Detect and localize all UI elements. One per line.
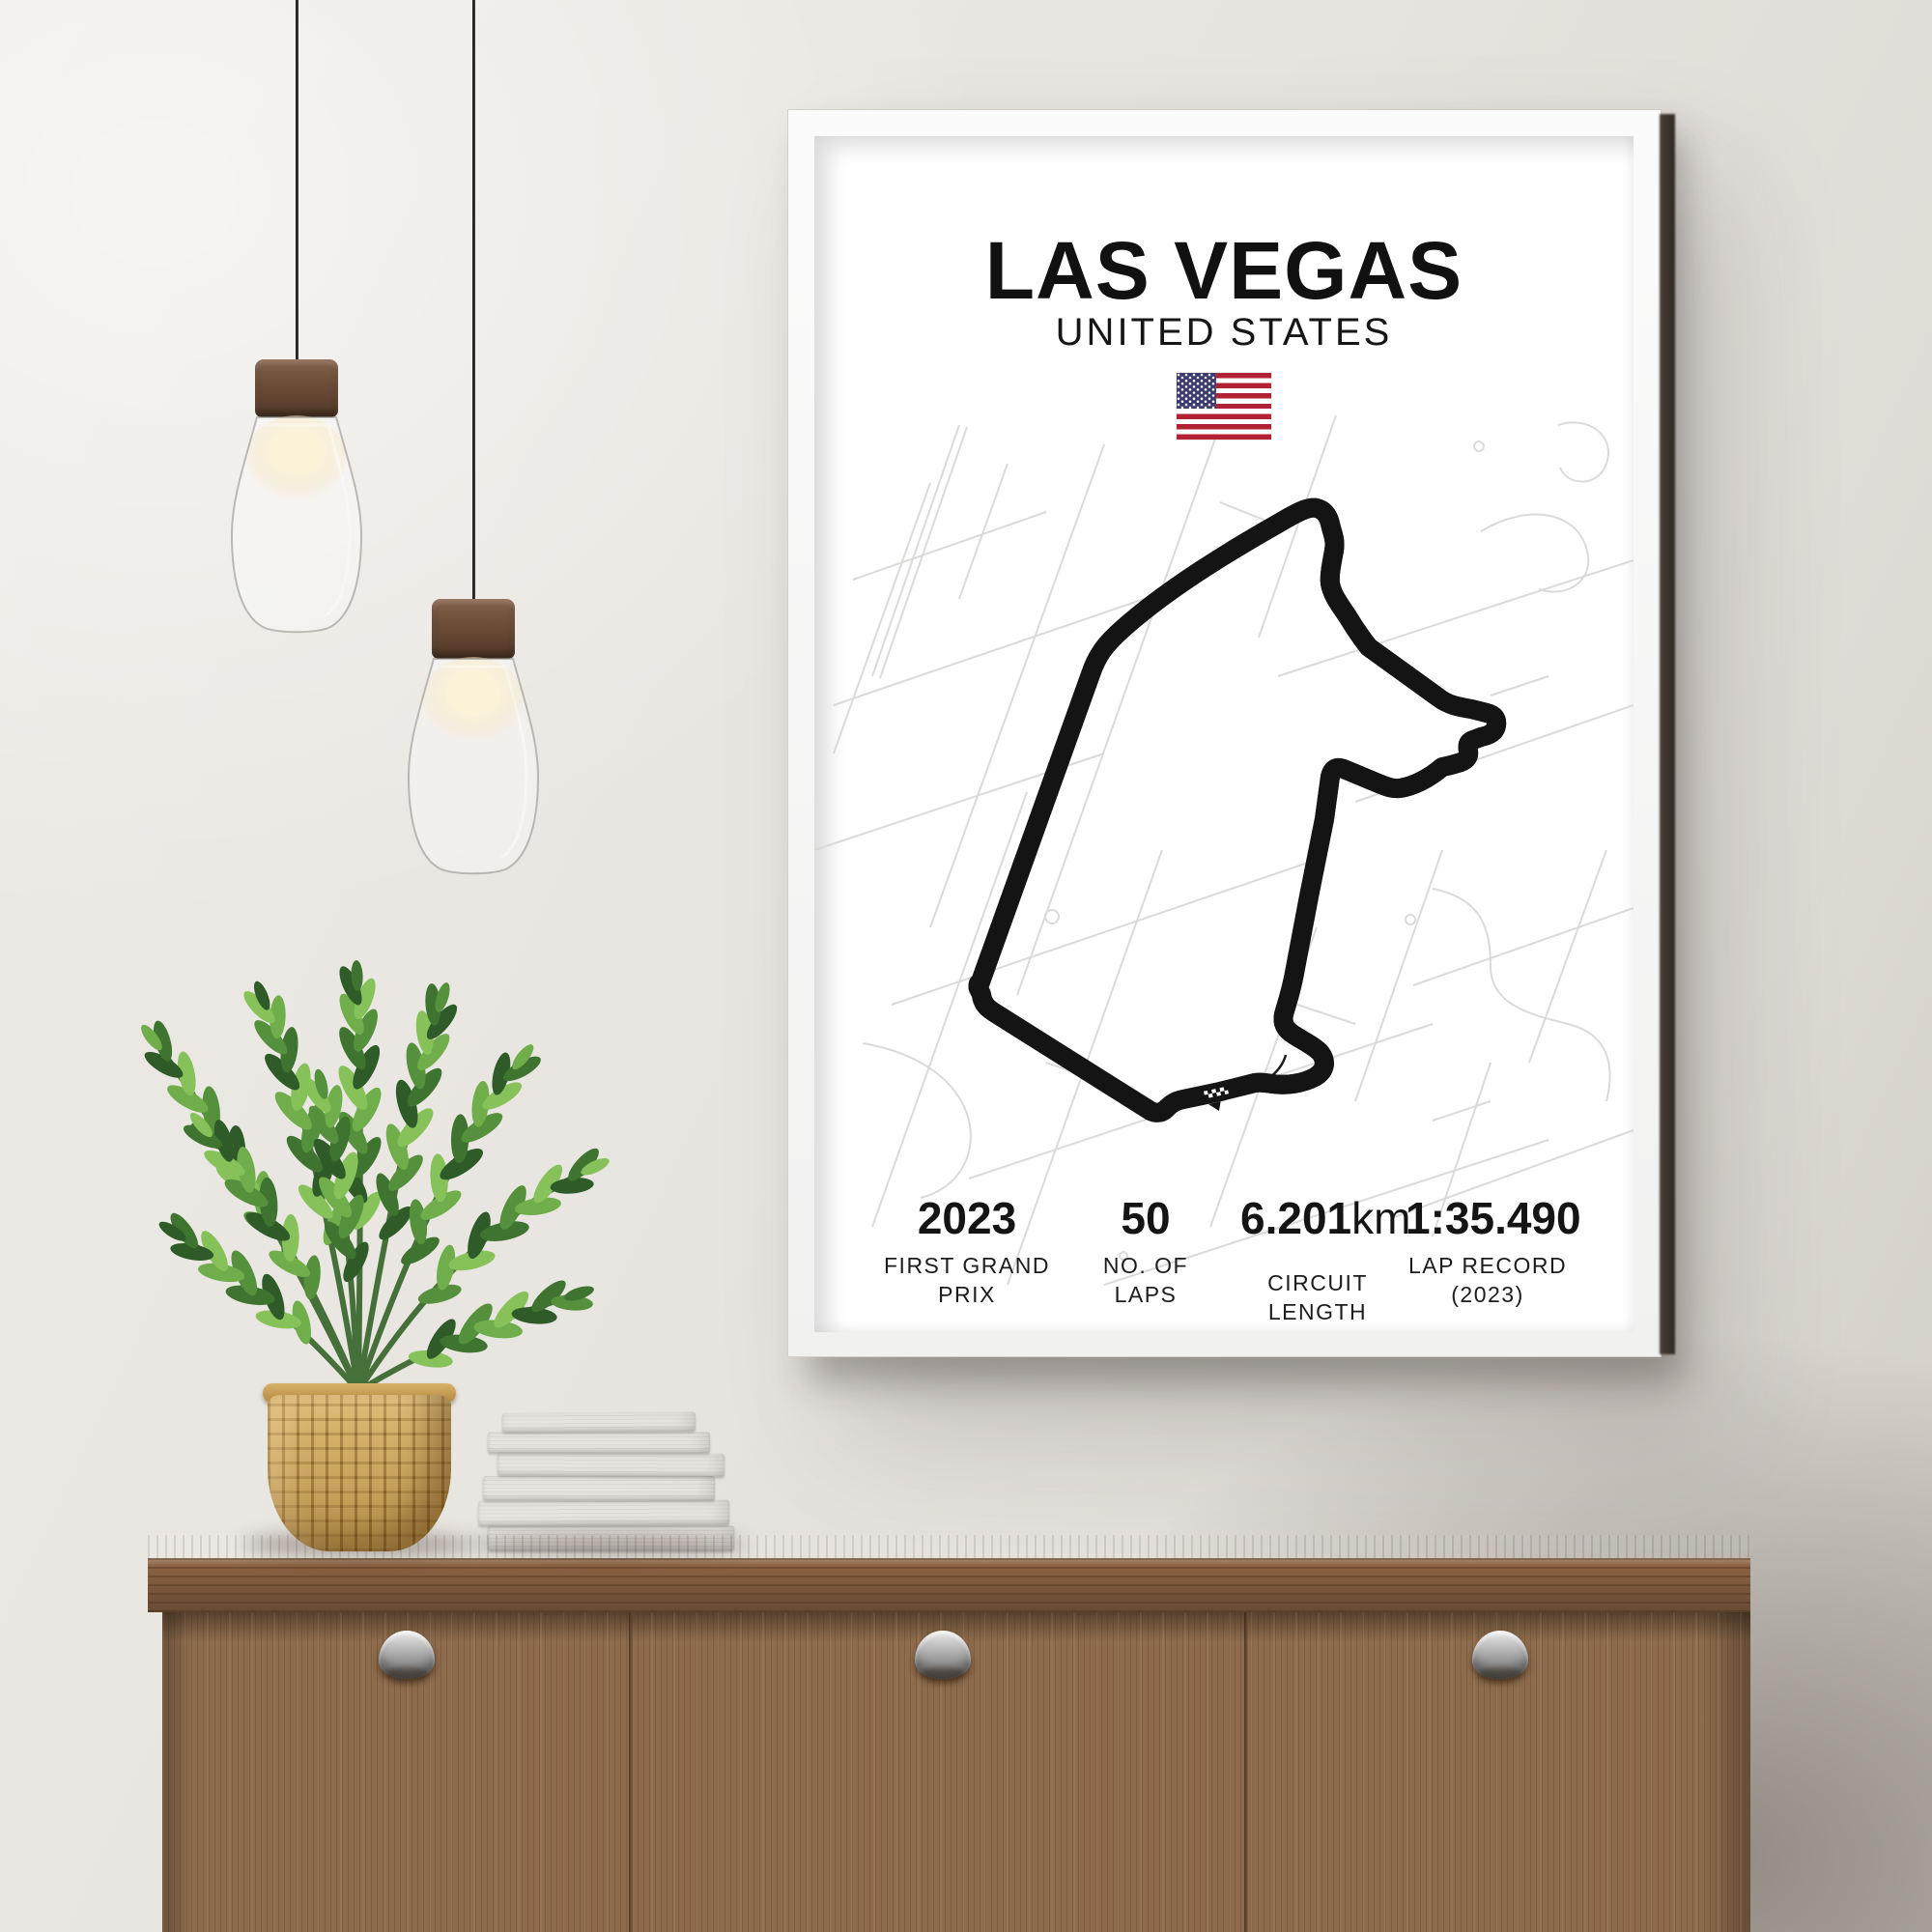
lamp-cord <box>296 0 298 361</box>
stat-label: LAP RECORD (2023) <box>1406 1252 1570 1310</box>
book <box>497 1452 724 1476</box>
book <box>483 1476 715 1500</box>
room-scene: LAS VEGAS UNITED STATES 2023 FIRST GRAND… <box>0 0 1932 1932</box>
stat-label: FIRST GRAND PRIX <box>875 1252 1059 1310</box>
door-seam <box>629 1612 633 1932</box>
pendant-lamp-left <box>214 413 379 638</box>
book <box>502 1411 696 1432</box>
book <box>488 1525 734 1550</box>
flag-canton <box>1177 373 1216 409</box>
stat-value: 50 <box>1068 1196 1223 1240</box>
light-bulb <box>270 429 324 475</box>
stat-circuit-length: 6.201km CIRCUIT LENGTH <box>1240 1196 1395 1327</box>
lamp-cord <box>472 0 475 603</box>
poster-subtitle: UNITED STATES <box>814 313 1634 352</box>
us-flag-icon <box>1177 373 1271 440</box>
circuit-track <box>978 508 1496 1113</box>
plant-pot <box>268 1395 451 1551</box>
book <box>478 1499 729 1525</box>
stat-label: NO. OF LAPS <box>1068 1252 1223 1310</box>
stat-value: 2023 <box>875 1196 1059 1240</box>
circuit-map <box>814 386 1634 1294</box>
stat-first-grand-prix: 2023 FIRST GRAND PRIX <box>875 1196 1059 1310</box>
stat-no-of-laps: 50 NO. OF LAPS <box>1068 1196 1223 1310</box>
zz-plant <box>130 978 623 1395</box>
stat-value: 6.201km <box>1240 1196 1395 1240</box>
light-bulb <box>446 670 500 717</box>
stat-label: CIRCUIT LENGTH <box>1240 1269 1395 1327</box>
lamp-cap <box>255 359 338 417</box>
book <box>488 1432 710 1453</box>
sideboard-top-edge <box>148 1558 1750 1612</box>
poster-frame-shadow-side <box>1660 114 1675 1354</box>
door-seam <box>1244 1612 1248 1932</box>
lamp-cap <box>432 599 515 659</box>
stat-value: 1:35.490 <box>1406 1196 1570 1240</box>
pendant-lamp-right <box>391 655 555 879</box>
stat-lap-record: 1:35.490 LAP RECORD (2023) <box>1406 1196 1570 1310</box>
poster-title: LAS VEGAS <box>814 230 1634 311</box>
